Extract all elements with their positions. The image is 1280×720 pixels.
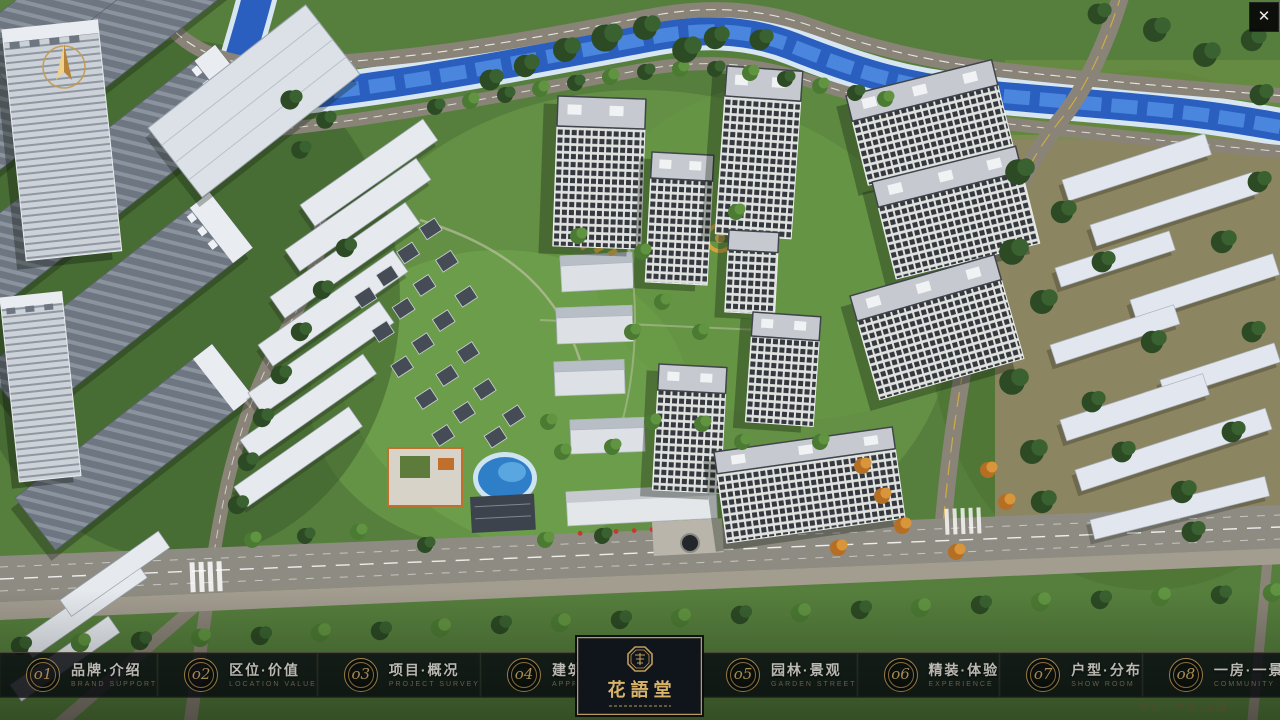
entrance-pavilion: [470, 494, 536, 533]
masterplan-render: [0, 0, 1280, 720]
logo-panel[interactable]: 花語堂: [577, 637, 702, 715]
nav-label-zh: 一房·一景: [1214, 663, 1280, 677]
nav-badge-02: o2: [184, 658, 218, 692]
nav-label-zh: 品牌·介绍: [71, 663, 157, 677]
nav-badge-04: o4: [507, 658, 541, 692]
nav-label-en: BRAND SUPPORT: [71, 681, 157, 688]
presentation-window: ✕ o1 品牌·介绍 BRAND SUPPORT o2 区位·价值 LOCATI…: [0, 0, 1280, 720]
nav-badge-05: o5: [726, 658, 760, 692]
nav-group-left: o1 品牌·介绍 BRAND SUPPORT o2 区位·价值 LOCATION…: [0, 653, 577, 697]
nav-label-en: LOCATION VALUE: [229, 681, 317, 688]
nav-item-brand[interactable]: o1 品牌·介绍 BRAND SUPPORT: [0, 653, 158, 697]
nav-item-garden[interactable]: o5 园林·景观 GARDEN STREET: [700, 653, 858, 697]
nav-group-right: o5 园林·景观 GARDEN STREET o6 精装·体验 EXPERIEN…: [700, 653, 1280, 697]
nav-item-location[interactable]: o2 区位·价值 LOCATION VALUE: [158, 653, 318, 697]
nav-item-view[interactable]: o8 一房·一景 COMMUNITY: [1143, 653, 1280, 697]
nav-label-zh: 园林·景观: [771, 663, 857, 677]
nav-label-en: SHOW ROOM: [1071, 681, 1142, 688]
nav-badge-01: o1: [26, 658, 60, 692]
nav-item-floorplan[interactable]: o7 户型·分布 SHOW ROOM: [1000, 653, 1143, 697]
nav-label-en: PROJECT SURVEY: [389, 681, 480, 688]
nav-label-zh: 户型·分布: [1071, 663, 1142, 677]
nav-label-en: GARDEN STREET: [771, 681, 857, 688]
nav-label-en: EXPERIENCE: [929, 681, 1000, 688]
nav-item-project[interactable]: o3 项目·概况 PROJECT SURVEY: [318, 653, 481, 697]
logo-title: 花語堂: [603, 676, 677, 702]
nav-label-zh: 区位·价值: [229, 663, 317, 677]
nav-badge-07: o7: [1026, 658, 1060, 692]
seal-icon: [626, 645, 654, 673]
nav-label-en: COMMUNITY: [1214, 681, 1280, 688]
nav-item-interior[interactable]: o6 精装·体验 EXPERIENCE: [858, 653, 1001, 697]
nav-badge-06: o6: [884, 658, 918, 692]
nav-badge-08: o8: [1169, 658, 1203, 692]
nav-label-zh: 项目·概况: [389, 663, 480, 677]
nav-badge-03: o3: [344, 658, 378, 692]
nav-label-zh: 精装·体验: [929, 663, 1000, 677]
logo-subtitle-line: [609, 705, 671, 707]
address-text: 地址：中国·山西: [1139, 699, 1228, 714]
close-button[interactable]: ✕: [1249, 2, 1279, 32]
orange-compound: [388, 448, 462, 506]
